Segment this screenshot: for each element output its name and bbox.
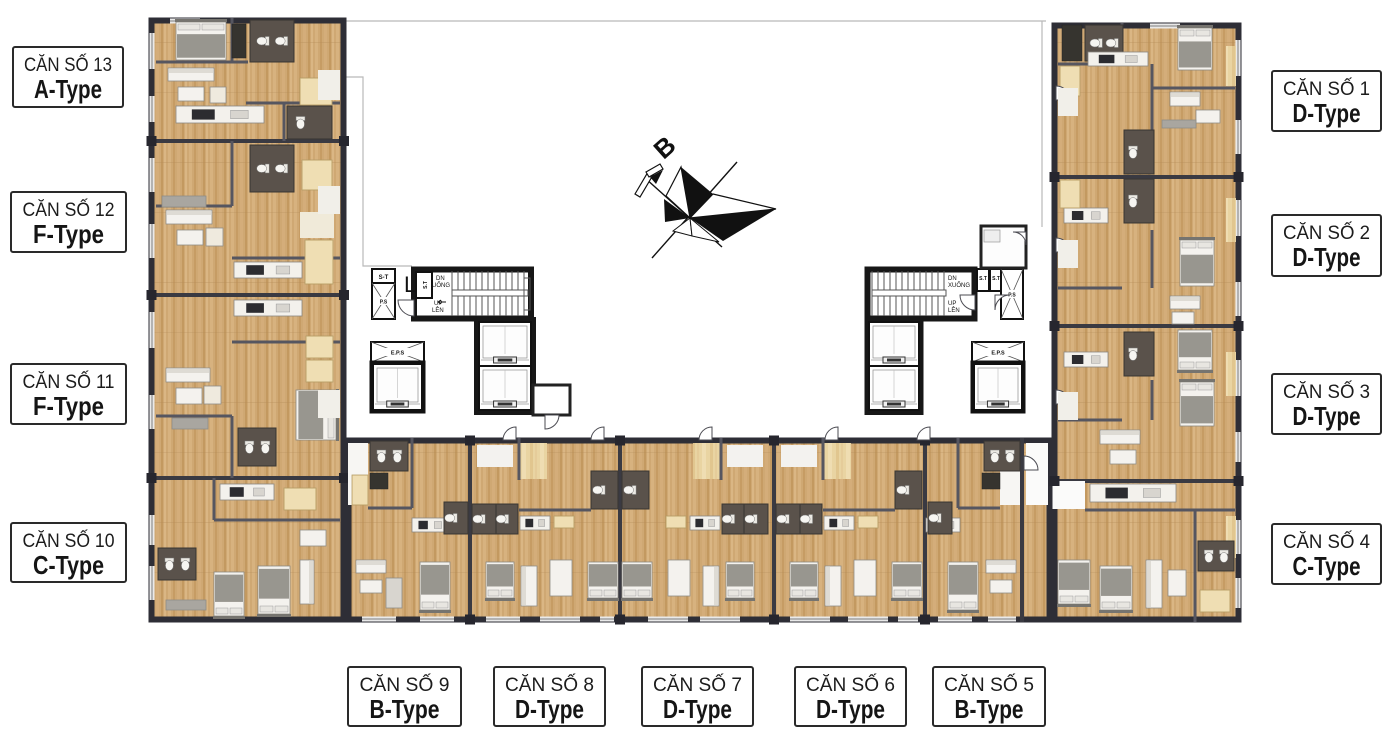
svg-text:CĂN SỐ 12: CĂN SỐ 12 [23,199,115,221]
svg-text:S.T: S.T [992,276,1000,282]
svg-text:CĂN SỐ 13: CĂN SỐ 13 [24,54,112,76]
svg-text:L: L [404,272,416,297]
svg-text:DN: DN [948,276,957,282]
svg-text:S.T: S.T [979,276,987,282]
svg-text:P.S: P.S [380,300,388,306]
svg-text:C-Type: C-Type [1293,551,1361,581]
svg-text:CĂN SỐ 3: CĂN SỐ 3 [1283,381,1370,403]
svg-text:CĂN SỐ 10: CĂN SỐ 10 [23,530,115,552]
svg-text:D-Type: D-Type [515,694,584,724]
svg-text:E.P.S: E.P.S [391,351,405,357]
svg-text:CĂN SỐ 2: CĂN SỐ 2 [1283,222,1370,244]
svg-text:CĂN SỐ 7: CĂN SỐ 7 [653,674,742,696]
svg-text:LÊN: LÊN [948,306,960,314]
svg-text:D-Type: D-Type [1293,401,1361,431]
svg-text:C-Type: C-Type [33,550,104,580]
svg-text:A-Type: A-Type [34,74,102,104]
svg-text:E.P.S: E.P.S [991,351,1005,357]
svg-text:S.T: S.T [423,281,429,289]
svg-text:D-Type: D-Type [1293,98,1361,128]
svg-text:XUỐNG: XUỐNG [948,282,970,289]
svg-text:LÊN: LÊN [432,306,444,314]
svg-text:CĂN SỐ 4: CĂN SỐ 4 [1283,531,1370,553]
svg-text:D-Type: D-Type [663,694,732,724]
svg-text:S-T: S-T [379,275,389,281]
svg-text:CĂN SỐ 1: CĂN SỐ 1 [1283,78,1370,100]
svg-text:CĂN SỐ 5: CĂN SỐ 5 [944,674,1034,696]
svg-text:F-Type: F-Type [33,219,104,249]
svg-text:CĂN SỐ 8: CĂN SỐ 8 [505,674,594,696]
svg-text:D-Type: D-Type [816,694,885,724]
svg-text:UP: UP [948,301,956,307]
svg-text:B-Type: B-Type [955,694,1024,724]
svg-text:CĂN SỐ 6: CĂN SỐ 6 [806,674,895,696]
svg-text:DN: DN [436,276,445,282]
svg-text:F-Type: F-Type [33,391,104,421]
svg-text:B-Type: B-Type [370,694,440,724]
svg-text:CĂN SỐ 9: CĂN SỐ 9 [360,674,450,696]
svg-text:CĂN SỐ 11: CĂN SỐ 11 [23,371,115,393]
svg-text:D-Type: D-Type [1293,242,1361,272]
